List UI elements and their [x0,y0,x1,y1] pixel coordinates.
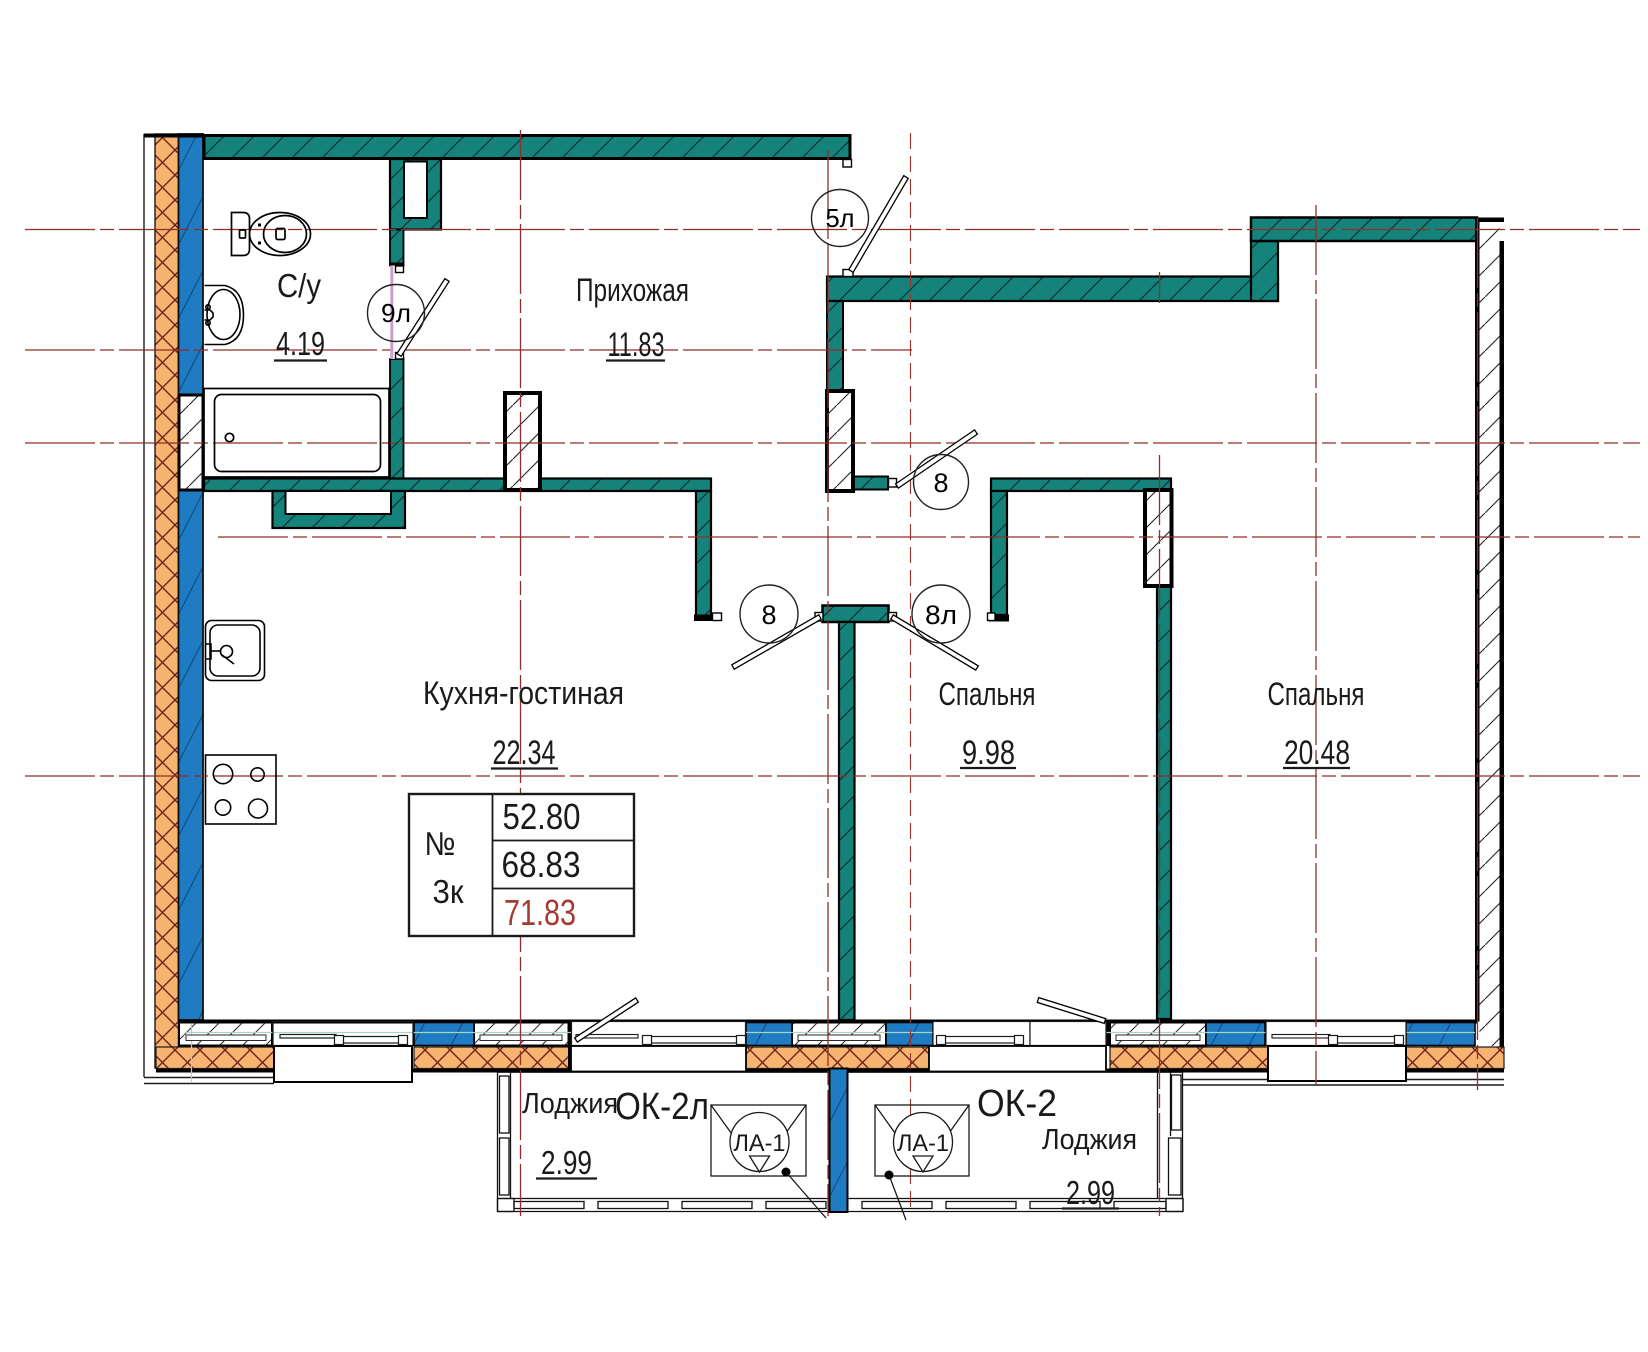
svg-text:С/у: С/у [277,267,321,304]
svg-text:68.83: 68.83 [502,844,581,885]
svg-text:3к: 3к [433,873,465,910]
svg-text:ОК-2: ОК-2 [977,1083,1057,1125]
svg-text:Лоджия: Лоджия [1042,1124,1137,1156]
svg-text:2.99: 2.99 [1066,1174,1115,1211]
svg-text:9.98: 9.98 [962,734,1015,772]
svg-text:2.99: 2.99 [541,1144,592,1181]
svg-text:Спальня: Спальня [939,676,1036,712]
svg-text:22.34: 22.34 [493,734,556,772]
svg-text:Лоджия: Лоджия [522,1088,618,1120]
svg-text:Спальня: Спальня [1268,676,1365,712]
svg-text:ОК-2л: ОК-2л [615,1086,709,1128]
svg-text:8л: 8л [925,600,957,630]
svg-text:5л: 5л [826,203,855,233]
svg-text:8: 8 [761,600,776,630]
svg-text:Кухня-гостиная: Кухня-гостиная [423,675,624,711]
svg-text:20.48: 20.48 [1284,734,1350,772]
svg-text:ЛА-1: ЛА-1 [734,1130,786,1157]
svg-text:9л: 9л [381,298,411,328]
svg-text:8: 8 [933,468,948,498]
svg-text:71.83: 71.83 [504,892,576,933]
svg-text:Прихожая: Прихожая [576,272,689,308]
svg-text:52.80: 52.80 [503,796,581,837]
svg-text:11.83: 11.83 [608,326,665,364]
svg-text:№: № [425,825,456,862]
svg-text:4.19: 4.19 [276,325,325,362]
svg-text:ЛА-1: ЛА-1 [897,1130,949,1157]
